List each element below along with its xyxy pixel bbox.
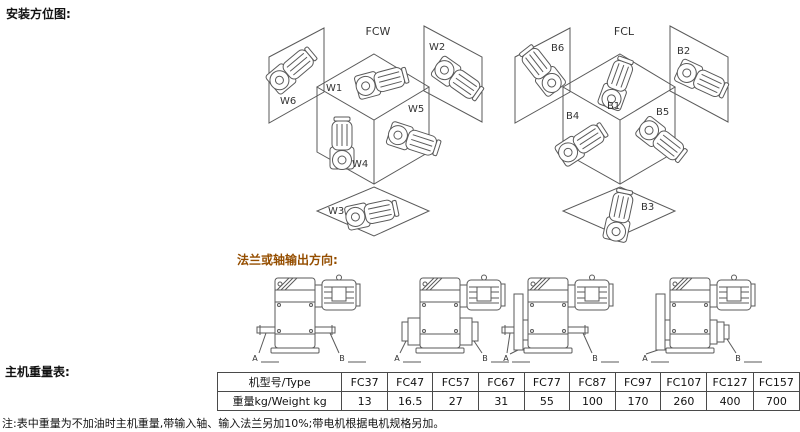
fcw-label-w6: W6 xyxy=(280,96,296,107)
gearmotor-icon-w2 xyxy=(430,55,487,105)
weight-cell-fc77: 55 xyxy=(524,392,570,411)
shaft-label-b: B xyxy=(735,354,741,363)
table-row-weight: 重量kg/Weight kg 13 16.5 27 31 55 100 170 … xyxy=(218,392,800,411)
fcl-label-b1: B1 xyxy=(607,101,620,112)
gearmotor-icon-b2 xyxy=(673,58,731,102)
model-cell-fc97: FC97 xyxy=(615,373,661,392)
model-cell-fc37: FC37 xyxy=(342,373,388,392)
output-drawing-flange-hollow: A B xyxy=(640,270,765,364)
shaft-label-b: B xyxy=(592,354,598,363)
model-cell-fc157: FC157 xyxy=(753,373,799,392)
gear-unit-drawing xyxy=(271,275,360,353)
footnote: 注:表中重量为不加油时主机重量,带输入轴、输入法兰另加10%;带电机根据电机规格… xyxy=(2,415,444,431)
weight-table-title: 主机重量表: xyxy=(5,363,70,380)
model-cell-fc47: FC47 xyxy=(387,373,433,392)
shaft-label-a: A xyxy=(252,354,258,363)
gearmotor-icon-b4 xyxy=(554,119,611,168)
fcw-label-w5: W5 xyxy=(408,104,424,115)
weight-cell-fc157: 700 xyxy=(753,392,799,411)
model-cell-fc57: FC57 xyxy=(433,373,479,392)
fcw-label-w1: W1 xyxy=(326,83,342,94)
model-cell-fc107: FC107 xyxy=(661,373,707,392)
weight-cell-fc67: 31 xyxy=(479,392,525,411)
fcl-mounting-diagram: FCL B1 B2 B3 B4 B5 B6 xyxy=(508,24,740,250)
fcl-label-b2: B2 xyxy=(677,46,690,57)
weight-cell-fc37: 13 xyxy=(342,392,388,411)
shaft-label-b: B xyxy=(482,354,488,363)
table-row-type: 机型号/Type FC37 FC47 FC57 FC67 FC77 FC87 F… xyxy=(218,373,800,392)
gear-unit-drawing xyxy=(524,275,613,353)
fcl-label-b4: B4 xyxy=(566,111,579,122)
output-drawing-double-shaft: A B xyxy=(245,270,370,364)
shaft-label-a: A xyxy=(394,354,400,363)
fcl-label-b3: B3 xyxy=(641,202,654,213)
gearmotor-icon-b3 xyxy=(602,187,636,243)
shaft-label-b: B xyxy=(339,354,345,363)
fcl-label-b5: B5 xyxy=(656,107,669,118)
weight-cell-fc97: 170 xyxy=(615,392,661,411)
weight-cell-fc47: 16.5 xyxy=(387,392,433,411)
shaft-label-a: A xyxy=(642,354,648,363)
output-direction-title: 法兰或轴输出方向: xyxy=(237,251,338,268)
gearmotor-icon-w3 xyxy=(344,196,400,230)
fcl-label-b6: B6 xyxy=(551,43,564,54)
output-drawing-hollow-shaft: A B xyxy=(390,270,515,364)
fcw-label-w3: W3 xyxy=(328,206,344,217)
gearmotor-icon-b5 xyxy=(634,115,690,166)
fcw-mounting-diagram: FCW W1 W2 W3 W4 W5 W6 xyxy=(262,24,494,250)
fcw-label-w4: W4 xyxy=(352,159,368,170)
type-row-label: 机型号/Type xyxy=(218,373,342,392)
output-drawing-flange-shaft: A B xyxy=(498,270,623,364)
weight-cell-fc87: 100 xyxy=(570,392,616,411)
model-cell-fc87: FC87 xyxy=(570,373,616,392)
weight-cell-fc57: 27 xyxy=(433,392,479,411)
fcw-label-w2: W2 xyxy=(429,42,445,53)
shaft-label-a: A xyxy=(503,354,509,363)
gearmotor-icon-w1 xyxy=(353,63,410,100)
gearmotor-icon-w5 xyxy=(385,121,442,160)
fcw-title: FCW xyxy=(366,25,391,38)
fcl-title: FCL xyxy=(614,25,635,38)
catalog-page: 安装方位图: FCW W1 W2 W3 W4 W5 W6 xyxy=(0,0,800,432)
model-cell-fc127: FC127 xyxy=(707,373,753,392)
weight-cell-fc107: 260 xyxy=(661,392,707,411)
weight-cell-fc127: 400 xyxy=(707,392,753,411)
model-cell-fc77: FC77 xyxy=(524,373,570,392)
weight-table: 机型号/Type FC37 FC47 FC57 FC67 FC77 FC87 F… xyxy=(217,372,800,411)
gearmotor-icon-w4 xyxy=(330,117,354,170)
model-cell-fc67: FC67 xyxy=(479,373,525,392)
mounting-diagram-title: 安装方位图: xyxy=(6,5,71,22)
weight-row-label: 重量kg/Weight kg xyxy=(218,392,342,411)
gearmotor-icon-w6 xyxy=(264,43,320,95)
